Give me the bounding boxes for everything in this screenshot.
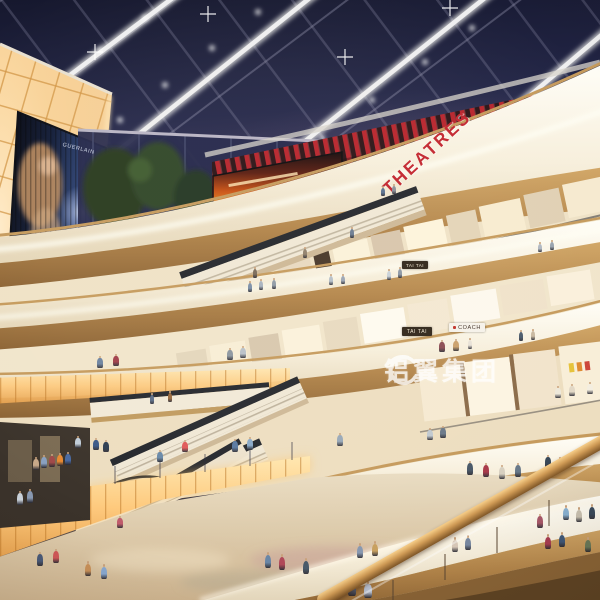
person bbox=[341, 274, 345, 284]
person bbox=[392, 184, 396, 194]
person bbox=[587, 382, 592, 394]
person bbox=[515, 463, 521, 477]
person bbox=[168, 391, 173, 402]
person bbox=[499, 465, 505, 479]
person bbox=[398, 267, 403, 278]
person bbox=[157, 450, 162, 462]
person bbox=[37, 552, 43, 566]
person bbox=[101, 564, 107, 579]
person bbox=[537, 514, 543, 528]
person bbox=[538, 242, 542, 252]
person bbox=[117, 516, 122, 528]
person bbox=[563, 505, 569, 520]
person bbox=[240, 346, 245, 358]
person bbox=[483, 463, 489, 477]
person bbox=[53, 549, 59, 563]
person bbox=[97, 356, 102, 368]
person bbox=[150, 393, 155, 404]
railing-post bbox=[548, 500, 550, 526]
person bbox=[329, 274, 334, 285]
person bbox=[576, 507, 582, 522]
person bbox=[279, 554, 286, 570]
person bbox=[49, 454, 54, 467]
person bbox=[381, 186, 385, 196]
person bbox=[467, 461, 473, 475]
person bbox=[337, 433, 342, 446]
person bbox=[357, 543, 363, 558]
person bbox=[439, 340, 444, 352]
person bbox=[468, 338, 473, 349]
person bbox=[57, 453, 62, 466]
person bbox=[519, 330, 524, 341]
person bbox=[17, 491, 23, 505]
person bbox=[569, 384, 574, 396]
railing-post bbox=[444, 554, 446, 580]
person bbox=[253, 267, 258, 278]
person bbox=[33, 457, 38, 470]
person bbox=[440, 426, 445, 438]
person bbox=[589, 504, 595, 519]
person bbox=[75, 436, 80, 448]
person bbox=[531, 329, 536, 340]
person bbox=[232, 439, 237, 452]
person bbox=[27, 489, 33, 503]
person bbox=[585, 537, 591, 552]
person bbox=[387, 269, 392, 280]
person bbox=[248, 281, 253, 292]
person bbox=[113, 354, 118, 366]
person bbox=[453, 339, 458, 351]
person bbox=[427, 428, 432, 440]
person bbox=[303, 247, 308, 258]
watermark: 铝翼集团 bbox=[384, 352, 500, 388]
person bbox=[350, 227, 355, 238]
person bbox=[550, 240, 554, 250]
person bbox=[555, 386, 560, 398]
person bbox=[93, 438, 98, 450]
person bbox=[265, 552, 272, 568]
person bbox=[545, 534, 551, 549]
person bbox=[247, 437, 252, 450]
person bbox=[182, 440, 187, 452]
person bbox=[65, 452, 70, 465]
person bbox=[272, 278, 277, 289]
railing-post bbox=[496, 527, 498, 553]
person bbox=[372, 541, 378, 556]
person bbox=[559, 532, 565, 547]
person bbox=[41, 455, 46, 468]
person bbox=[85, 561, 91, 576]
watermark-swirl-icon bbox=[384, 352, 418, 392]
mall-atrium-rendering: THEATRES GUERLAIN TAI TAI TAI TAI COACH … bbox=[0, 0, 600, 600]
person bbox=[303, 558, 310, 574]
railing-post bbox=[392, 580, 394, 600]
person bbox=[259, 279, 264, 290]
person bbox=[103, 440, 108, 452]
person bbox=[227, 348, 232, 360]
